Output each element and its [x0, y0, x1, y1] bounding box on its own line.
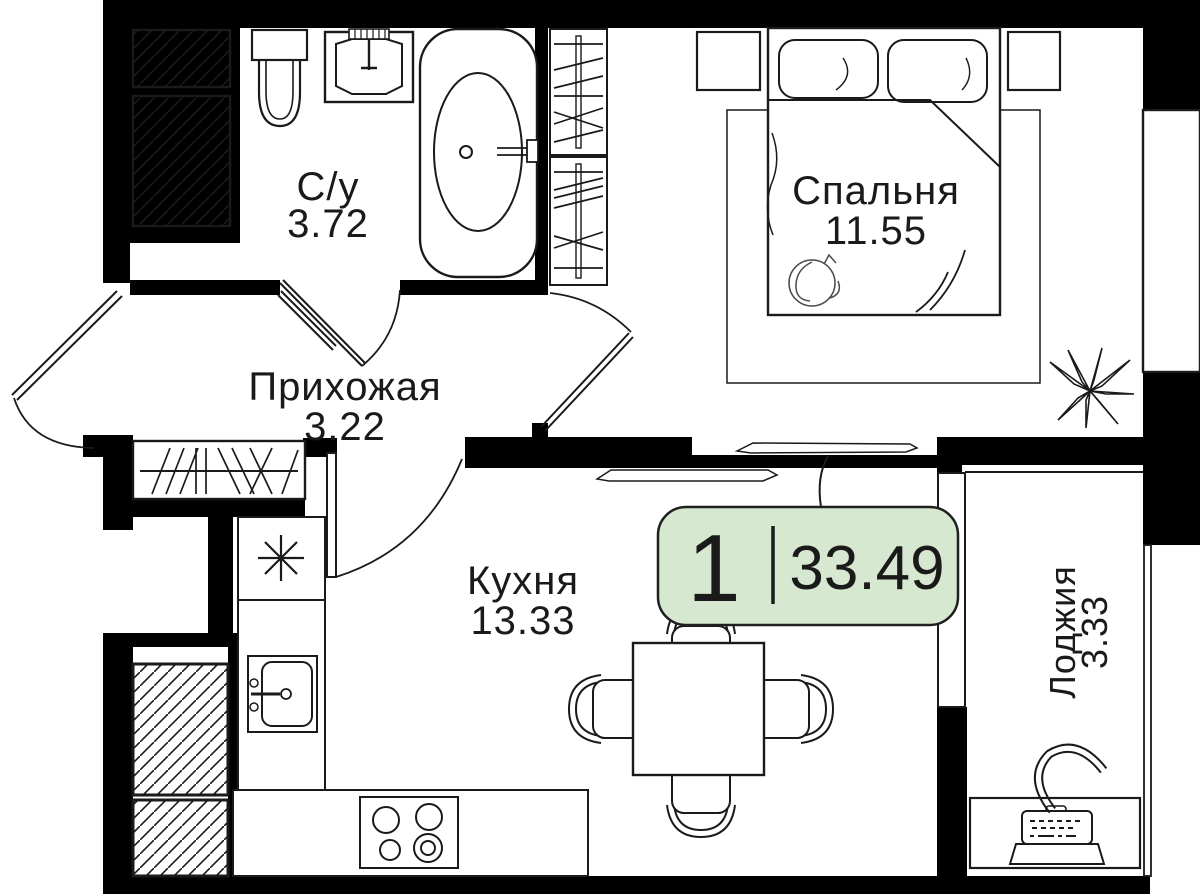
hallway: Прихожая 3.22: [133, 365, 442, 499]
kitchen-sink-icon: [248, 656, 317, 732]
loggia-glazing-right: [1144, 545, 1151, 876]
bathroom: С/у 3.72: [252, 29, 538, 277]
kitchen-bedroom-wall-b: [692, 455, 942, 468]
dining-table: [633, 643, 764, 775]
dining-set: [569, 602, 833, 837]
hallway-area: 3.22: [304, 405, 386, 449]
pillow: [888, 40, 987, 102]
loggia-area: 3.33: [1074, 595, 1115, 669]
bathroom-sink-icon: [325, 29, 413, 102]
kitchen-name: Кухня: [467, 559, 579, 603]
bedroom-name: Спальня: [792, 169, 960, 213]
badge-total-area: 33.49: [789, 534, 944, 603]
plant-icon: [1050, 348, 1134, 428]
laptop-icon: [1010, 806, 1104, 864]
desk: [970, 798, 1140, 868]
kitchen-bedroom-wall-a: [465, 437, 692, 468]
top-wall: [103, 0, 1200, 28]
bedroom-wardrobes: [550, 29, 607, 285]
bedroom: Спальня 11.55: [697, 28, 1134, 428]
bathtub-icon: [420, 29, 538, 277]
right-wall-upper: [1143, 0, 1200, 112]
bath-bottom-wall-left: [130, 280, 280, 295]
bottom-wall: [103, 876, 1150, 894]
entry-stub: [83, 435, 105, 457]
pillow: [779, 40, 878, 98]
left-wall-lower: [103, 633, 133, 894]
nightstand-right: [1008, 32, 1060, 90]
entry-door-arc: [14, 398, 94, 448]
wardrobe-icon: [550, 157, 607, 285]
hall-wardrobe-icon: [133, 441, 305, 499]
kitchen-area: 13.33: [470, 599, 575, 643]
toilet-icon: [252, 30, 307, 126]
nightstand-left: [697, 32, 760, 90]
right-wall-mid: [1143, 371, 1200, 545]
wardrobe-icon: [550, 29, 607, 155]
hallway-name: Прихожая: [248, 365, 441, 409]
stove-icon: [360, 797, 458, 868]
bath-bottom-wall-right: [400, 280, 548, 295]
bathroom-door-icon: [280, 280, 400, 366]
bathroom-area: 3.72: [287, 202, 369, 246]
floor-plan: С/у 3.72 Прихожая 3.22: [0, 0, 1200, 894]
loggia-partition-lower: [937, 707, 967, 876]
loggia: Лоджия 3.33: [970, 565, 1140, 868]
kitchen-left-wall: [208, 517, 233, 647]
kitchen-door-icon: [327, 453, 462, 577]
bedroom-area: 11.55: [825, 209, 927, 253]
badge-rooms-count: 1: [687, 515, 740, 622]
loggia-top-wall: [962, 437, 1143, 465]
shaft-icon: [133, 30, 230, 87]
bedroom-window: [1143, 110, 1200, 372]
loggia-corner-stub: [937, 437, 962, 477]
bedroom-door-icon: [541, 293, 633, 431]
fridge-icon: [238, 517, 325, 600]
